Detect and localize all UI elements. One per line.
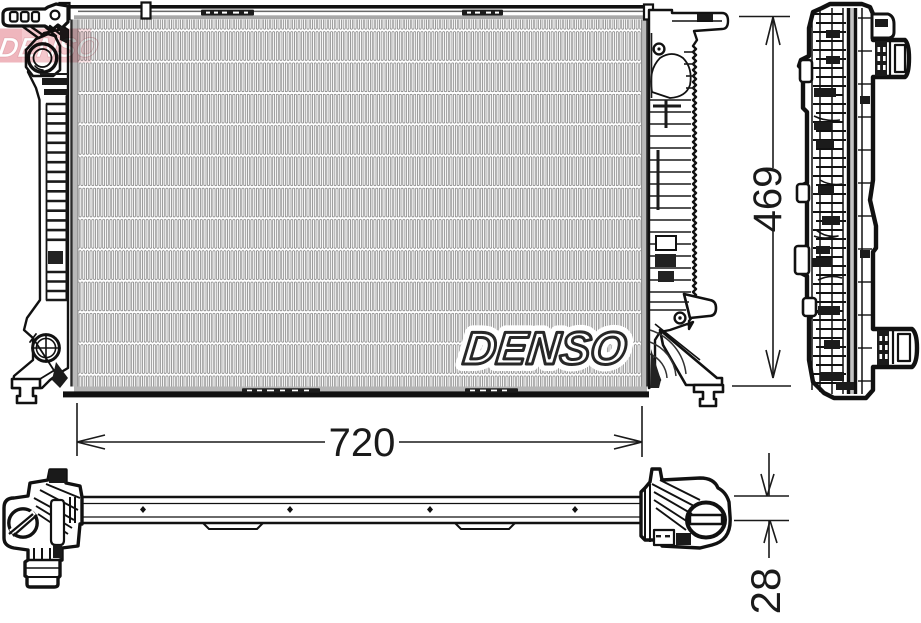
svg-text:DENSO: DENSO <box>0 31 101 63</box>
svg-text:28: 28 <box>742 568 789 615</box>
svg-text:720: 720 <box>329 421 396 465</box>
svg-text:469: 469 <box>746 166 790 233</box>
svg-text:DENSO: DENSO <box>461 322 630 374</box>
